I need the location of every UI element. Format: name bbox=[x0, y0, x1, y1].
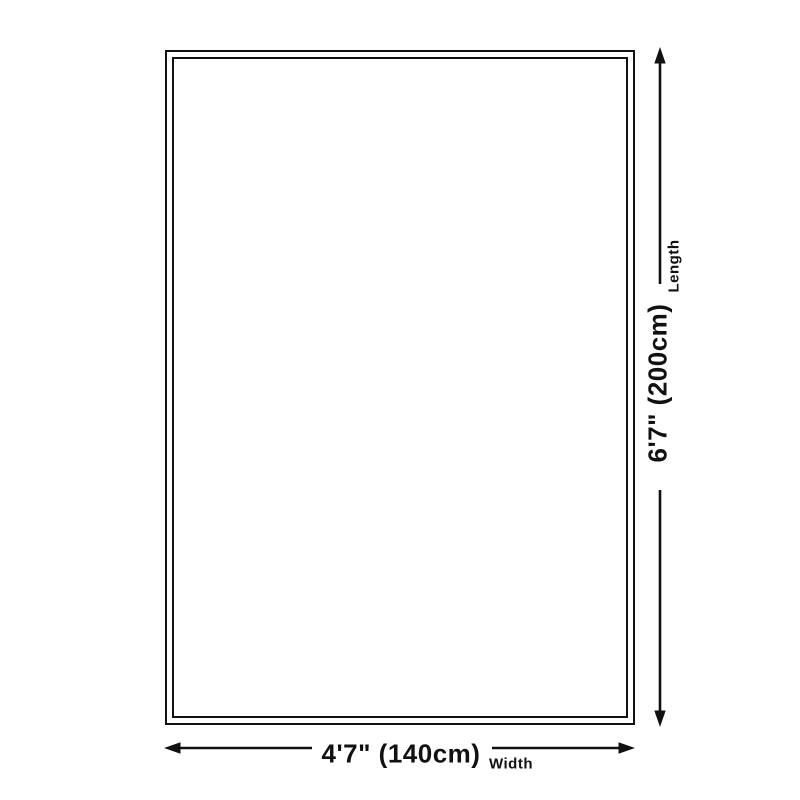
product-outline-outer bbox=[165, 50, 635, 725]
product-outline-inner bbox=[172, 57, 628, 718]
width-value-label: 4'7" (140cm) bbox=[322, 739, 481, 770]
width-axis-label: Width bbox=[489, 756, 533, 773]
length-axis-label: Length bbox=[666, 240, 683, 293]
length-value-label: 6'7" (200cm) bbox=[643, 304, 674, 463]
dimension-diagram: 6'7" (200cm) Length 4'7" (140cm) Width bbox=[0, 0, 800, 800]
